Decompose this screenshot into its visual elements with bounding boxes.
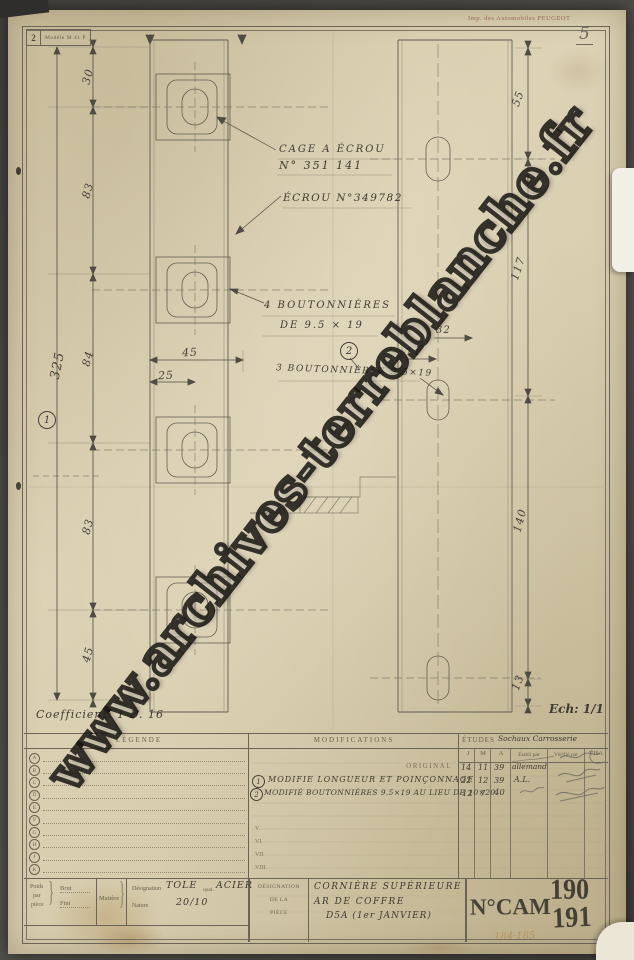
col-j-line bbox=[474, 748, 475, 878]
scanned-technical-drawing: 2 Modèle M 41 P Imp. des Automobiles PEU… bbox=[0, 0, 634, 960]
matiere-label: Matière bbox=[99, 895, 119, 902]
dotted-leader bbox=[43, 852, 245, 861]
table-div-etudes bbox=[458, 733, 459, 878]
col-etabli-line bbox=[547, 748, 548, 878]
entry-0-a: 39 bbox=[494, 763, 504, 772]
modifications-header: MODIFICATIONS bbox=[250, 736, 458, 744]
etudes-col-verifie: Vérifié par bbox=[548, 752, 584, 758]
table-div-legend bbox=[248, 733, 249, 878]
legend-row: D bbox=[29, 789, 248, 801]
annotation-cage-num: N° 351 141 bbox=[279, 159, 363, 172]
tb-line-5 bbox=[465, 878, 467, 942]
dim-width-25: 25 bbox=[158, 369, 175, 383]
mod-row-2-num: 2 bbox=[250, 788, 263, 801]
dotted-leader bbox=[43, 753, 245, 762]
legend-letter: C bbox=[29, 777, 40, 788]
etudes-col-a: A bbox=[492, 750, 510, 757]
matiere-brace: } bbox=[119, 875, 125, 913]
entry-1-a: 39 bbox=[494, 776, 504, 785]
cam-number-stamp: N°CAM 190 191 bbox=[468, 877, 607, 940]
dotted-leader bbox=[43, 765, 245, 774]
legend-row: J bbox=[29, 851, 248, 863]
original-row-label: ORIGINAL bbox=[340, 762, 452, 770]
stamp-number: 2 bbox=[27, 30, 41, 45]
legend-letter: F bbox=[29, 815, 40, 826]
printer-credit: Imp. des Automobiles PEUGEOT bbox=[468, 15, 570, 22]
page-number: 5 bbox=[576, 24, 593, 45]
legend-row: B bbox=[29, 764, 248, 776]
poids-label-2: par bbox=[33, 893, 41, 899]
piece-name-2: AR DE COFFRE bbox=[314, 897, 405, 907]
detail-marker-2: 2 bbox=[340, 342, 358, 360]
legend-letter: K bbox=[29, 864, 40, 875]
col-verifie-line bbox=[584, 748, 585, 878]
dim-width-45: 45 bbox=[182, 346, 199, 360]
dotted-leader bbox=[43, 790, 245, 799]
mod-row-1-text: MODIFIE LONGUEUR ET POINÇONNAGE bbox=[268, 775, 474, 784]
scan-edge-slip bbox=[612, 168, 634, 272]
piece-label-1: DÉSIGNATION bbox=[252, 884, 306, 890]
legend-letter: D bbox=[29, 790, 40, 801]
roman-row-vii: VII bbox=[255, 852, 263, 858]
etudes-col-j: J bbox=[462, 750, 474, 757]
piece-name-3: D5A (1er JANVIER) bbox=[326, 911, 432, 921]
scale-note: Ech: 1/1 bbox=[549, 702, 604, 716]
tb-line-1 bbox=[96, 878, 97, 925]
dotted-leader bbox=[43, 777, 245, 786]
entry-0-j: 14 bbox=[461, 763, 471, 772]
legend-row: G bbox=[29, 826, 248, 838]
cam-number-bottom: 191 bbox=[552, 901, 592, 936]
fini-label: Fini bbox=[60, 900, 90, 908]
entry-0-m: 11 bbox=[478, 763, 488, 772]
entry-1-m: 12 bbox=[478, 776, 488, 785]
legend-letter: A bbox=[29, 753, 40, 764]
poids-brace: } bbox=[48, 874, 54, 909]
stamp-model: Modèle M 41 P bbox=[41, 30, 90, 45]
col-a-line bbox=[510, 748, 511, 878]
dotted-leader bbox=[43, 839, 245, 848]
designation-value: TOLE bbox=[166, 880, 197, 891]
brut-label: Brut bbox=[60, 885, 90, 893]
poids-label-3: pièce bbox=[31, 902, 44, 908]
roman-row-viii: VIII bbox=[255, 865, 265, 871]
legend-row: K bbox=[29, 864, 248, 876]
legend-row: E bbox=[29, 802, 248, 814]
annotation-4-boutonnieres-size: DE 9.5 × 19 bbox=[280, 320, 364, 331]
detail-marker-1: 1 bbox=[38, 411, 56, 429]
etudes-col-etabli: Établi par bbox=[511, 752, 547, 758]
legend-row: F bbox=[29, 814, 248, 826]
nature-value: 20/10 bbox=[176, 897, 208, 908]
legend-rows: A B C D E F G H J K bbox=[29, 752, 248, 876]
legend-header: LÉGENDE bbox=[30, 736, 248, 744]
annotation-4-boutonnieres: 4 BOUTONNIÈRES bbox=[264, 300, 391, 311]
dotted-leader bbox=[43, 864, 245, 873]
legend-row: C bbox=[29, 777, 248, 789]
mod-row-1-num: 1 bbox=[252, 775, 265, 788]
etudes-header: ÉTUDES bbox=[462, 736, 495, 744]
titleblock-left-bottom-line bbox=[24, 925, 248, 926]
etudes-header-handwritten: Sochaux Carrosserie bbox=[498, 734, 577, 743]
legend-row: A bbox=[29, 752, 248, 764]
piece-label-3: PIÈCE bbox=[252, 910, 306, 916]
legend-letter: G bbox=[29, 827, 40, 838]
legend-letter: B bbox=[29, 765, 40, 776]
cam-label: N°CAM bbox=[470, 894, 551, 921]
dim-right-14: 14 bbox=[406, 347, 421, 358]
annotation-ecrou: ÉCROU N°349782 bbox=[283, 192, 403, 204]
coefficient-note: Coefficient: 1 D. 16 bbox=[36, 708, 164, 721]
tb-line-2 bbox=[126, 878, 127, 925]
etudes-col-m: M bbox=[476, 750, 490, 757]
poids-label-1: Poids bbox=[30, 884, 43, 890]
mod-row-2-text: MODIFIÉ BOUTONNIÈRES 9.5×19 AU LIEU DE 1… bbox=[264, 788, 496, 797]
legend-row: H bbox=[29, 839, 248, 851]
roman-row-v: V bbox=[255, 826, 259, 832]
piece-name-1: CORNIÈRE SUPÉRIEURE bbox=[314, 882, 462, 892]
dotted-leader bbox=[43, 802, 245, 811]
etudes-col-visa: VISA bbox=[585, 751, 607, 757]
qual-value: ACIER bbox=[216, 880, 253, 891]
designation-label: Désignation bbox=[132, 886, 161, 892]
entry-0-etabli: allemand bbox=[512, 762, 547, 771]
dim-right-32: 32 bbox=[436, 325, 451, 336]
legend-letter: J bbox=[29, 852, 40, 863]
pencil-note: 184·185 bbox=[494, 930, 536, 942]
col-m-line bbox=[490, 748, 491, 878]
tb-line-4 bbox=[308, 878, 309, 942]
dotted-leader bbox=[43, 827, 245, 836]
nature-label: Nature bbox=[132, 903, 148, 909]
qual-label: qual. bbox=[203, 887, 214, 893]
dotted-leader bbox=[43, 815, 245, 824]
legend-letter: E bbox=[29, 802, 40, 813]
annotation-cage: CAGE A ÉCROU bbox=[279, 144, 386, 155]
table-header-line bbox=[24, 748, 608, 749]
model-stamp-box: 2 Modèle M 41 P bbox=[26, 29, 91, 46]
legend-letter: H bbox=[29, 839, 40, 850]
roman-row-vi: VI bbox=[255, 839, 261, 845]
piece-label-2: DE LA bbox=[252, 897, 306, 903]
entry-1-etabli: A.L. bbox=[514, 775, 530, 784]
